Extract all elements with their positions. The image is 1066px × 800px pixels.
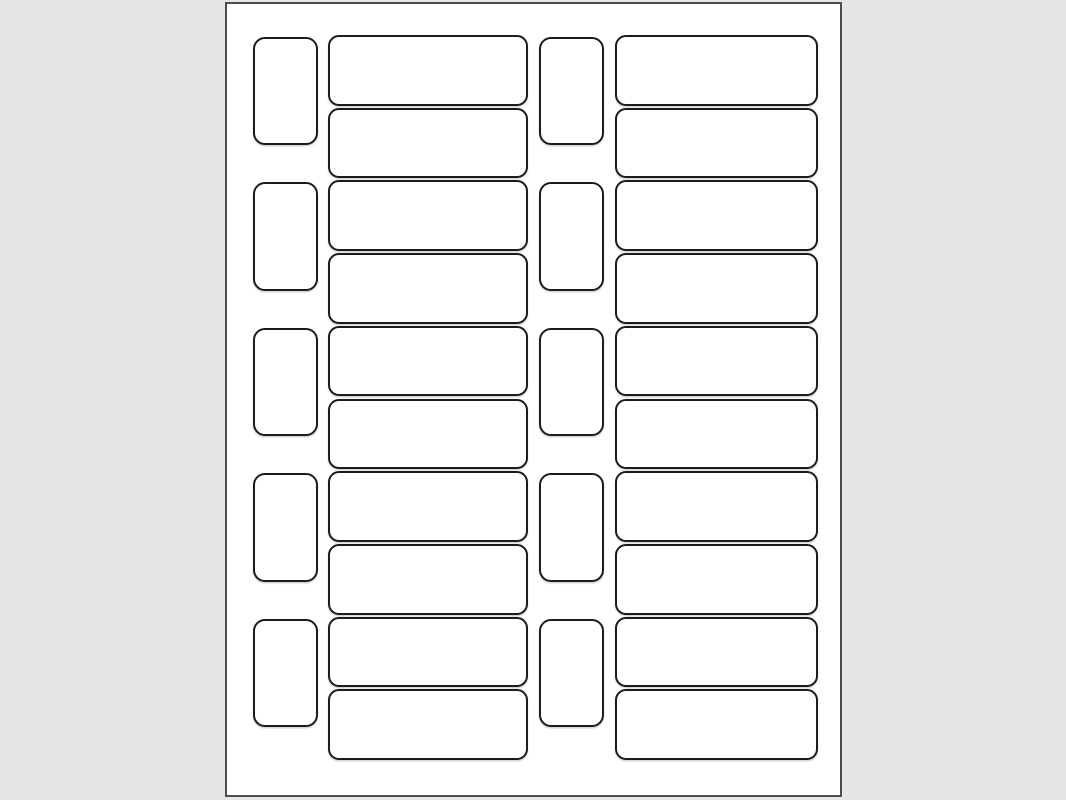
small-label <box>253 37 318 145</box>
large-label <box>328 544 528 615</box>
small-label <box>253 182 318 290</box>
large-label <box>615 544 818 615</box>
small-label <box>539 182 604 290</box>
large-label <box>328 35 528 106</box>
large-label <box>328 253 528 324</box>
large-label <box>615 180 818 251</box>
small-label <box>253 473 318 581</box>
large-label <box>615 617 818 688</box>
large-label <box>328 471 528 542</box>
label-template-canvas <box>0 0 1066 800</box>
small-label <box>253 328 318 436</box>
large-label <box>615 326 818 397</box>
label-sheet <box>225 2 842 797</box>
large-label <box>615 399 818 470</box>
large-label <box>328 108 528 179</box>
large-label <box>328 326 528 397</box>
small-label <box>539 328 604 436</box>
large-label <box>328 399 528 470</box>
large-label <box>615 253 818 324</box>
large-label <box>615 471 818 542</box>
small-label <box>539 619 604 727</box>
large-label <box>615 689 818 760</box>
large-label <box>328 689 528 760</box>
small-label <box>539 473 604 581</box>
large-label <box>615 35 818 106</box>
large-label <box>615 108 818 179</box>
small-label <box>539 37 604 145</box>
small-label <box>253 619 318 727</box>
large-label <box>328 180 528 251</box>
large-label <box>328 617 528 688</box>
